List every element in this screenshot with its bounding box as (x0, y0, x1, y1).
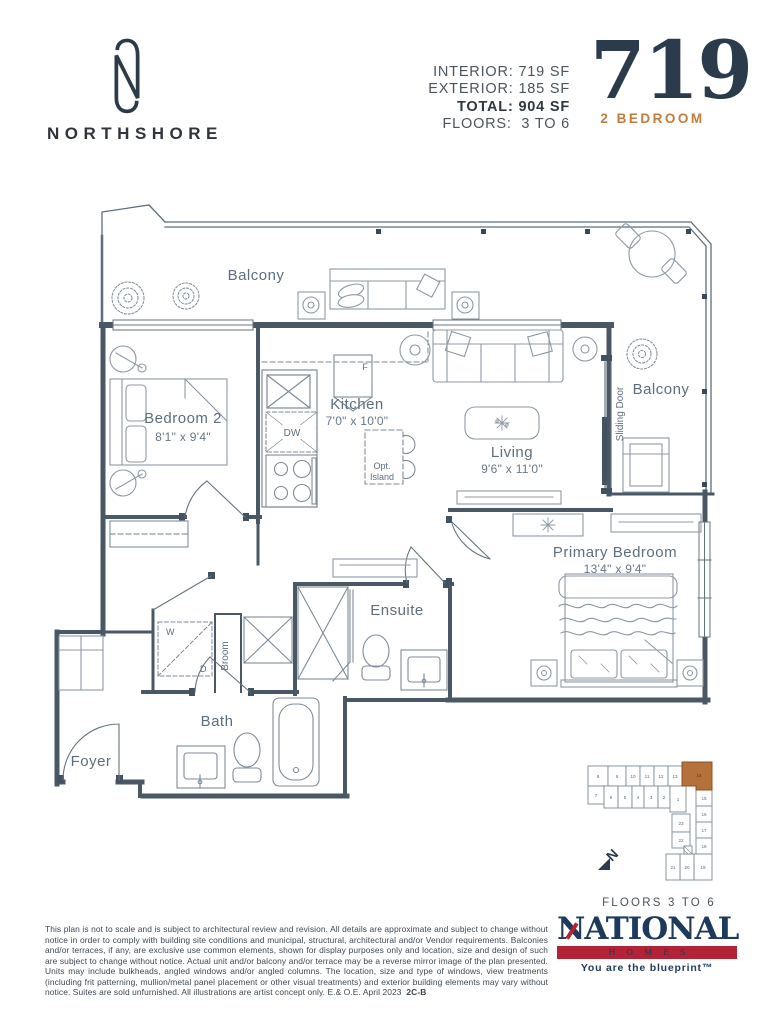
opt-island-label-2: Island (370, 472, 394, 482)
balcony-top-label: Balcony (228, 267, 285, 284)
interior-walls (103, 325, 611, 700)
plant-sprig-icon (495, 416, 509, 430)
kitchen-dim: 7'0" x 10'0" (326, 414, 389, 428)
shower (298, 587, 353, 681)
unit-number: 719 (590, 30, 715, 110)
room-ensuite: Ensuite (298, 587, 447, 690)
plan-code: 2C-B (406, 987, 426, 997)
bath-label: Bath (201, 713, 234, 730)
bathtub (273, 698, 319, 786)
national-homes-bar: HOMES (557, 946, 737, 959)
svg-text:19: 19 (700, 865, 706, 870)
bedroom2-label: Bedroom 2 (144, 410, 222, 427)
svg-text:18: 18 (701, 844, 707, 849)
door-jambs (57, 513, 452, 783)
legal-disclaimer: This plan is not to scale and is subject… (45, 924, 548, 998)
fridge-label: F (362, 362, 368, 372)
linen-closet (244, 617, 292, 663)
room-primary-bedroom: Primary Bedroom 13'4" x 9'4" (333, 514, 703, 687)
svg-text:14: 14 (696, 773, 702, 778)
svg-text:6: 6 (610, 795, 613, 800)
svg-text:2: 2 (663, 795, 666, 800)
plant-icon (112, 282, 199, 314)
toilet (362, 635, 390, 680)
svg-text:3: 3 (650, 795, 653, 800)
north-arrow-icon: N (598, 846, 621, 870)
room-living: Living 9'6" x 11'0" (400, 330, 597, 504)
ensuite-label: Ensuite (370, 602, 424, 619)
svg-text:5: 5 (624, 795, 627, 800)
bedroom2-closet (110, 521, 188, 547)
foyer-label: Foyer (71, 753, 112, 770)
lounge-chair (623, 438, 669, 492)
dresser-with-plant (513, 514, 583, 536)
national-homes-logo: NATIONAL HOMES You are the blueprint™ (557, 915, 737, 974)
unit-stats: INTERIOR: 719 SF EXTERIOR: 185 SF TOTAL:… (428, 64, 570, 134)
svg-text:16: 16 (701, 812, 707, 817)
plant-sprig-icon (541, 518, 555, 532)
stat-interior: INTERIOR: 719 SF (428, 64, 570, 81)
svg-text:4: 4 (637, 795, 640, 800)
svg-text:23: 23 (678, 821, 684, 826)
corridor-dresser (333, 559, 417, 577)
railing-posts (376, 229, 707, 487)
keyplan: 8 9 10 11 12 13 14 7 6 5 4 3 2 1 15 16 1… (583, 758, 735, 909)
svg-text:10: 10 (630, 774, 636, 779)
national-tagline: You are the blueprint™ (557, 962, 737, 974)
room-bath: Bath (177, 698, 319, 788)
svg-text:1: 1 (677, 797, 680, 802)
svg-text:8: 8 (597, 774, 600, 779)
primary-bedroom-dim: 13'4" x 9'4" (584, 562, 647, 576)
sliding-door-label: Sliding Door (615, 386, 626, 441)
foyer-closet (59, 636, 103, 690)
keyplan-floors-label: FLOORS 3 TO 6 (583, 897, 735, 909)
sofa (433, 330, 563, 382)
stat-floors: FLOORS: 3 TO 6 (428, 116, 570, 133)
toilet (233, 733, 261, 782)
svg-text:20: 20 (684, 865, 690, 870)
svg-text:N: N (603, 846, 621, 864)
washer-label: W (166, 627, 175, 637)
svg-text:11: 11 (645, 774, 650, 779)
svg-text:15: 15 (701, 796, 707, 801)
primary-bedroom-label: Primary Bedroom (553, 544, 677, 561)
national-logo-wordmark: NATIONAL (557, 915, 737, 944)
windows (113, 320, 711, 637)
svg-text:13: 13 (672, 774, 678, 779)
vanity-sink (401, 650, 447, 690)
outdoor-sofa (330, 269, 445, 309)
bedroom2-dim: 8'1" x 9'4" (155, 430, 211, 444)
dresser-long (611, 514, 701, 532)
balcony-right: Balcony Sliding Door (615, 339, 689, 492)
balcony-right-label: Balcony (633, 381, 690, 398)
stat-total: TOTAL: 904 SF (428, 99, 570, 116)
northshore-monogram-icon (104, 36, 150, 114)
brand-name: NORTHSHORE (47, 124, 207, 144)
plant-icon (627, 339, 657, 369)
svg-text:22: 22 (678, 838, 684, 843)
laundry-closet: W D Broom (158, 617, 292, 676)
balcony-railing (102, 205, 711, 494)
svg-text:17: 17 (701, 828, 707, 833)
bistro-set (615, 223, 688, 285)
dishwasher-label: DW (284, 428, 301, 439)
dryer-label: D (200, 664, 207, 674)
stat-exterior: EXTERIOR: 185 SF (428, 81, 570, 98)
round-side-tables (400, 335, 597, 365)
svg-text:21: 21 (670, 865, 676, 870)
living-dim: 9'6" x 11'0" (481, 462, 543, 476)
keyplan-drawing: 8 9 10 11 12 13 14 7 6 5 4 3 2 1 15 16 1… (584, 758, 734, 888)
balcony-top: Balcony (112, 223, 687, 319)
opt-island-label-1: Opt. (373, 461, 390, 471)
svg-text:12: 12 (658, 774, 664, 779)
room-foyer: Foyer (59, 636, 111, 770)
unit-type: 2 BEDROOM (590, 111, 715, 126)
brand-block: NORTHSHORE (47, 36, 207, 144)
broom-closet-label: Broom (220, 641, 231, 670)
svg-text:9: 9 (616, 774, 619, 779)
kitchen-label: Kitchen (330, 396, 384, 413)
unit-title: 719 2 BEDROOM (590, 30, 715, 126)
stove (266, 455, 317, 507)
tv-console (457, 491, 561, 504)
svg-text:7: 7 (595, 793, 598, 798)
coffee-table (465, 407, 539, 439)
disclaimer-text: This plan is not to scale and is subject… (45, 924, 548, 997)
floorplan-sheet: NORTHSHORE INTERIOR: 719 SF EXTERIOR: 18… (0, 0, 762, 1024)
living-label: Living (491, 444, 533, 461)
bed (559, 574, 677, 687)
vanity-sink (177, 746, 225, 788)
